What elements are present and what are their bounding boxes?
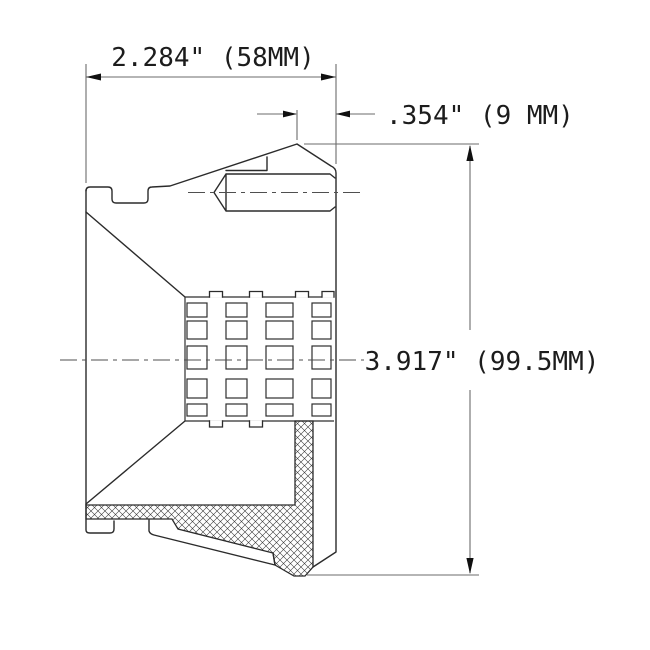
dimension-offset-label: .354" (9 MM) [386, 101, 574, 131]
arrowhead-down [466, 558, 473, 574]
centerlines [60, 193, 364, 361]
dimension-width-label: 2.284" (58MM) [111, 43, 315, 73]
arrowhead-right-small [283, 111, 297, 118]
arrowhead-up [466, 145, 473, 161]
rib-grid-section [185, 292, 334, 428]
rib-grid-tabs [210, 292, 335, 428]
dimension-offset: .354" (9 MM) [257, 101, 574, 140]
arrowhead-left [86, 74, 101, 81]
technical-drawing: 2.284" (58MM) .354" (9 MM) 3.917" (99.5M… [0, 0, 650, 650]
rubber-seal-hatched [86, 421, 313, 576]
arrowhead-right [321, 74, 336, 81]
dimension-height-label: 3.917" (99.5MM) [365, 347, 600, 377]
dimension-width: 2.284" (58MM) [86, 43, 336, 183]
arrowhead-left-small [336, 111, 350, 118]
drawing-canvas: 2.284" (58MM) .354" (9 MM) 3.917" (99.5M… [0, 0, 650, 650]
